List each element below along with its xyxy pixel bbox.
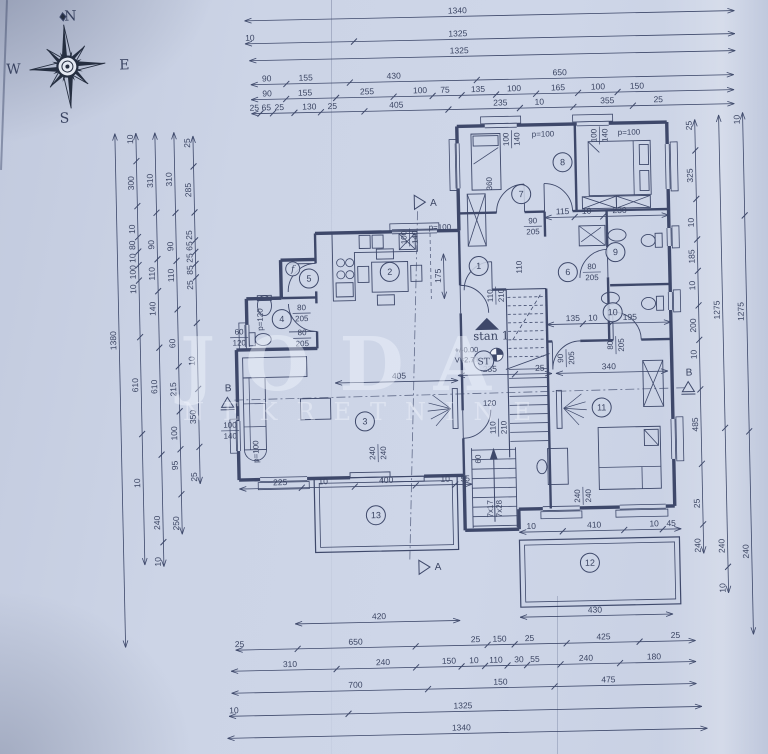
plan-text: 90 (528, 216, 538, 225)
plan-label: 80205 (292, 303, 310, 323)
plan-text: 110 (147, 267, 157, 281)
plan-label: 240240 (573, 487, 593, 505)
dimension-chain: 175 (432, 254, 446, 299)
plan-text: 700 (348, 680, 363, 690)
plan-text: 90 (146, 240, 156, 250)
room-number-4: 4 (272, 309, 291, 328)
plan-text: 80 (606, 340, 615, 350)
plan-text: 25 (471, 634, 481, 644)
plan-label: p=100 (618, 128, 641, 137)
room-number-1: 1 (469, 256, 488, 275)
plan-label: 100140 (501, 130, 521, 148)
plan-text: 400 (379, 475, 394, 485)
plan-text: 10 (132, 478, 142, 488)
dimension-chain: 256525130254052351035525 (249, 93, 734, 117)
plan-text: 120 (483, 399, 497, 408)
plan-text: 10 (526, 521, 536, 531)
plan-text: 100 (399, 230, 408, 244)
room-number-13: 13 (366, 506, 385, 525)
plan-text: 60 (234, 327, 244, 336)
plan-text: 25 (185, 280, 195, 290)
dimension-chain: 1340 (227, 717, 707, 740)
plan-text: 285 (183, 183, 193, 198)
plan-text: 135 (471, 84, 486, 94)
plan-label: 7x28 (495, 499, 504, 517)
plan-text: 90 (165, 241, 175, 251)
plan-label: 60 (474, 454, 483, 464)
dimension-chain: 127524010 (708, 115, 732, 593)
plan-text: 4 (279, 314, 284, 324)
room-number-2: 2 (380, 262, 399, 281)
plan-text: 405 (392, 371, 407, 381)
plan-text: 135 (566, 313, 581, 323)
plan-text: 10 (318, 476, 328, 486)
plan-text: 7x28 (495, 499, 504, 517)
plan-text: 310 (283, 659, 298, 669)
plan-label: p=100 (251, 440, 260, 463)
plan-text: 10 (245, 33, 255, 43)
plan-text: 13 (371, 510, 381, 520)
plan-text: 25 (249, 103, 259, 113)
plan-text: 310 (164, 172, 174, 187)
plan-text: 300 (126, 176, 136, 191)
plan-text: 10 (229, 705, 239, 715)
plan-text: 420 (372, 611, 387, 621)
plan-text: 100 (589, 128, 598, 142)
plan-text: 1325 (448, 28, 467, 38)
plan-text: 340 (602, 361, 617, 371)
dimension-chain: 3109011014061024010 (144, 133, 167, 567)
plan-text: 9 (613, 247, 618, 257)
plan-text: 2 (387, 267, 392, 277)
plan-text: 85 (185, 265, 195, 275)
plan-text: 65 (184, 241, 194, 251)
plan-text: 10 (125, 134, 135, 144)
plan-text: 155 (299, 72, 314, 82)
plan-text: 610 (130, 378, 140, 393)
plan-text: 1275 (736, 302, 746, 321)
plan-text: 12 (585, 558, 595, 568)
plan-text: 10 (582, 206, 592, 216)
plan-text: 475 (601, 674, 616, 684)
plan-text: W (6, 62, 21, 78)
plan-text: 25 (274, 102, 284, 112)
plan-text: 30 (514, 654, 524, 664)
plan-text: 45 (666, 518, 676, 528)
plan-text: 10 (717, 583, 727, 593)
plan-text: 80 (298, 328, 308, 337)
plan-text: 210 (497, 288, 506, 302)
dimension-chain: 23525 (458, 362, 552, 378)
plan-text: 100 (501, 132, 510, 146)
plan-text: 120 (232, 338, 246, 347)
room-number-7: 7 (512, 184, 531, 203)
plan-text: 150 (630, 80, 645, 90)
plan-text: 205 (526, 227, 540, 236)
room-number-12: 12 (580, 553, 599, 572)
plan-label: 100140 (221, 421, 239, 441)
plan-text: 10 (127, 224, 137, 234)
plan-text: 230 (612, 205, 627, 215)
plan-text: 1325 (453, 700, 472, 710)
dimension-chain: 25650251502542525 (235, 630, 696, 654)
dimension-chain: 101275240 (732, 112, 757, 634)
plan-text: 115 (556, 206, 570, 216)
plan-text: p=100 (532, 129, 555, 138)
dimension-chain: 1340 (244, 0, 734, 23)
plan-text: 200 (688, 318, 698, 333)
plan-text: B (225, 383, 232, 394)
plan-text: 140 (147, 301, 157, 316)
plan-text: 7 (519, 189, 524, 199)
plan-text: 10 (608, 307, 618, 317)
plan-text: 110 (488, 421, 497, 434)
plan-text: 235 (493, 97, 508, 107)
plan-text: 100 (128, 265, 138, 280)
plan-text: 430 (588, 604, 603, 614)
plan-text: 60 (167, 338, 177, 348)
plan-text: 55 (460, 473, 470, 483)
plan-text: 225 (273, 477, 288, 487)
dimension-chain: 430 (520, 603, 673, 620)
plan-text: 1340 (452, 722, 471, 732)
plan-text: p=100 (429, 223, 452, 232)
plan-text: A (430, 198, 437, 209)
plan-text: 25 (184, 253, 194, 263)
plan-text: 25 (684, 120, 694, 130)
plan-label: 80205 (293, 328, 311, 348)
plan-label: 60120 (230, 327, 248, 347)
plan-text: 10 (649, 518, 659, 528)
plan-label: 7x17 (486, 499, 495, 517)
plan-text: 240 (579, 653, 594, 663)
plan-text: ST (478, 357, 490, 367)
plan-text: 110 (486, 289, 495, 302)
plan-text: 410 (587, 519, 602, 529)
plan-text: 250 (171, 516, 181, 531)
plan-text: 240 (368, 446, 377, 460)
plan-text: 140 (600, 128, 609, 142)
room-number-6: 6 (558, 262, 577, 281)
plan-text: 8 (560, 157, 565, 167)
plan-text: 150 (442, 656, 457, 666)
plan-text: 110 (166, 268, 176, 282)
compass-layer: NWES (5, 7, 131, 128)
dimensions-layer: 1340101325132590155430650901552551007513… (101, 0, 758, 743)
room-number-3: 3 (355, 412, 374, 431)
room-number-10: 10 (603, 302, 622, 321)
plan-text: 110 (515, 260, 524, 273)
dimension-chain: 101325 (229, 695, 702, 719)
plan-text: 240 (152, 515, 162, 530)
plan-text: 205 (585, 273, 599, 282)
plan-text: 25 (671, 630, 681, 640)
plan-text: 1 (476, 261, 481, 271)
plan-label: 100140 (399, 228, 419, 246)
dimension-chain: 1380 (104, 134, 128, 648)
plan-text: 350 (188, 410, 198, 425)
plan-text: 100 (169, 426, 179, 441)
plan-text: 485 (690, 417, 700, 432)
plan-label: 110 (515, 260, 524, 273)
plan-text: 150 (493, 676, 508, 686)
plan-text: 10 (127, 253, 137, 263)
plan-text: 205 (296, 339, 310, 348)
plan-text: N (64, 8, 77, 24)
plan-text: 255 (360, 86, 375, 96)
plan-text: 100 (413, 85, 428, 95)
plan-text: 205 (295, 314, 309, 323)
plan-text: 100 (507, 83, 522, 93)
plan-text: 405 (389, 100, 404, 110)
plan-text: 650 (552, 67, 567, 77)
plan-label: p=120 (256, 308, 265, 331)
floor-plan-drawing: 1340101325132590155430650901552551007513… (0, 0, 768, 754)
plan-text: 25 (182, 138, 192, 148)
room-number-11: 11 (592, 398, 611, 417)
plan-text: 355 (600, 95, 615, 105)
plan-text: 240 (379, 446, 388, 460)
plan-text: 325 (685, 168, 695, 183)
dimension-chain: 90155430650 (251, 64, 734, 88)
plan-text: 10 (686, 217, 696, 227)
plan-text: 240 (716, 539, 726, 554)
plan-text: 11 (597, 402, 607, 412)
plan-text: 610 (149, 379, 159, 394)
dimension-chain: 103001080101001061010 (125, 133, 148, 565)
plan-text: 165 (551, 82, 566, 92)
plan-text: 90 (556, 353, 565, 363)
plan-text: 360 (485, 176, 494, 190)
plan-text: 240 (741, 544, 751, 559)
plan-text: 25 (525, 633, 535, 643)
plan-text: 80 (127, 240, 137, 250)
plan-text: 25 (189, 472, 199, 482)
plan-text: 130 (302, 101, 317, 111)
plan-text: 240 (573, 489, 582, 503)
plan-label: 240240 (368, 444, 388, 462)
plan-text: 25 (184, 230, 194, 240)
plan-text: 140 (512, 132, 521, 146)
room-number-9: 9 (606, 242, 625, 261)
plan-text: 210 (499, 420, 508, 434)
plan-text: p=120 (256, 308, 265, 331)
plan-text: 10 (128, 284, 138, 294)
scanned-floor-plan-page: 1340101325132590155430650901552551007513… (0, 0, 768, 754)
dimension-chain: 2532510185102001048525240 (684, 119, 707, 553)
plan-text: 10 (440, 474, 450, 484)
plan-text: 90 (262, 73, 272, 83)
plan-text: 205 (617, 338, 626, 352)
plan-text: B (686, 368, 693, 379)
plan-text: 140 (223, 432, 237, 441)
plan-text: 10 (588, 313, 598, 323)
plan-text: 25 (535, 363, 545, 373)
plan-text: 240 (584, 488, 593, 502)
plan-text: 1325 (450, 45, 469, 55)
plan-text: 110 (489, 655, 503, 665)
plan-text: 6 (565, 267, 570, 277)
plan-text: 60 (474, 454, 483, 464)
dimension-chain: 700150475 (231, 673, 696, 697)
plan-text: 10 (469, 655, 479, 665)
plan-text: 425 (596, 631, 611, 641)
plan-text: 10 (732, 114, 742, 124)
plan-text: 95 (170, 460, 180, 470)
plan-text: 10 (153, 557, 163, 567)
plan-label: 80205 (583, 262, 601, 282)
plan-text: 205 (567, 351, 576, 365)
plan-text: E (119, 57, 130, 73)
plan-text: 155 (298, 87, 313, 97)
room-number-5: 5 (299, 269, 318, 288)
plan-text: +/-0.00 (455, 345, 479, 354)
plan-text: 1340 (448, 5, 467, 15)
plan-text: 430 (386, 71, 401, 81)
plan-text: 10 (687, 280, 697, 290)
plan-label: 100140 (589, 126, 609, 144)
plan-text: 150 (492, 633, 507, 643)
plan-text: 75 (440, 85, 450, 95)
plan-text: 1275 (711, 300, 721, 319)
plan-text: 215 (168, 382, 178, 397)
plan-text: 25 (327, 101, 337, 111)
plan-text: 240 (376, 657, 391, 667)
plan-label: 120 (483, 399, 497, 408)
plan-text: 185 (686, 249, 696, 264)
plan-text: 55 (530, 654, 540, 664)
plan-text: 1380 (108, 331, 118, 350)
plan-text: 25 (653, 94, 663, 104)
stair-core-circle: ST (473, 351, 493, 371)
dimension-chain: 2528525652585251035025 (182, 136, 203, 484)
plan-text: p=100 (618, 128, 641, 137)
dimension-chain: 405 (335, 369, 458, 385)
dimension-chain: 310240150101103055240180 (231, 651, 696, 675)
plan-label: 90205 (524, 216, 542, 236)
dimension-chain: 420 (295, 609, 460, 626)
plan-text: 90 (262, 88, 272, 98)
plan-text: 180 (647, 651, 662, 661)
plan-text: 10 (534, 97, 544, 107)
plan-text: 100 (223, 421, 237, 430)
plan-label: p=100 (532, 129, 555, 138)
plan-label: p=100 (429, 223, 452, 232)
dimension-chain: 104101045 (519, 518, 681, 535)
plan-text: 240 (692, 538, 702, 553)
plan-root: 1340101325132590155430650901552551007513… (5, 0, 758, 745)
plan-text: 25 (235, 639, 245, 649)
plan-text: 10 (187, 356, 197, 366)
plan-text: 100 (591, 81, 606, 91)
plan-text: 310 (145, 173, 155, 188)
dimension-chain: 1325 (249, 40, 735, 64)
plan-text: 25 (692, 498, 702, 508)
plan-text: stan 1 (473, 328, 509, 343)
plan-text: 7x17 (486, 499, 495, 517)
plan-text: 140 (410, 230, 419, 244)
plan-label: 110210 (486, 286, 506, 304)
plan-text: 195 (623, 312, 638, 322)
plan-label: 360 (485, 176, 494, 190)
plan-text: 5 (306, 273, 311, 283)
symbol-circle: f (286, 262, 300, 276)
plan-text: 650 (348, 637, 363, 647)
compass-rose (25, 9, 109, 111)
room-number-8: 8 (553, 153, 572, 172)
plan-text: 10 (688, 349, 698, 359)
plan-text: 80 (587, 262, 597, 271)
plan-text: S (60, 111, 70, 127)
plan-text: 65 (261, 102, 271, 112)
plan-text: 80 (297, 303, 307, 312)
plan-text: A (435, 562, 442, 573)
plan-text: p=100 (251, 440, 260, 463)
plan-text: 175 (433, 268, 443, 283)
dimension-chain: 310901106021510095250 (163, 132, 185, 534)
dimension-chain: 101325 (245, 23, 735, 47)
plan-text: 3 (362, 416, 367, 426)
plan-label: 110210 (488, 418, 508, 436)
